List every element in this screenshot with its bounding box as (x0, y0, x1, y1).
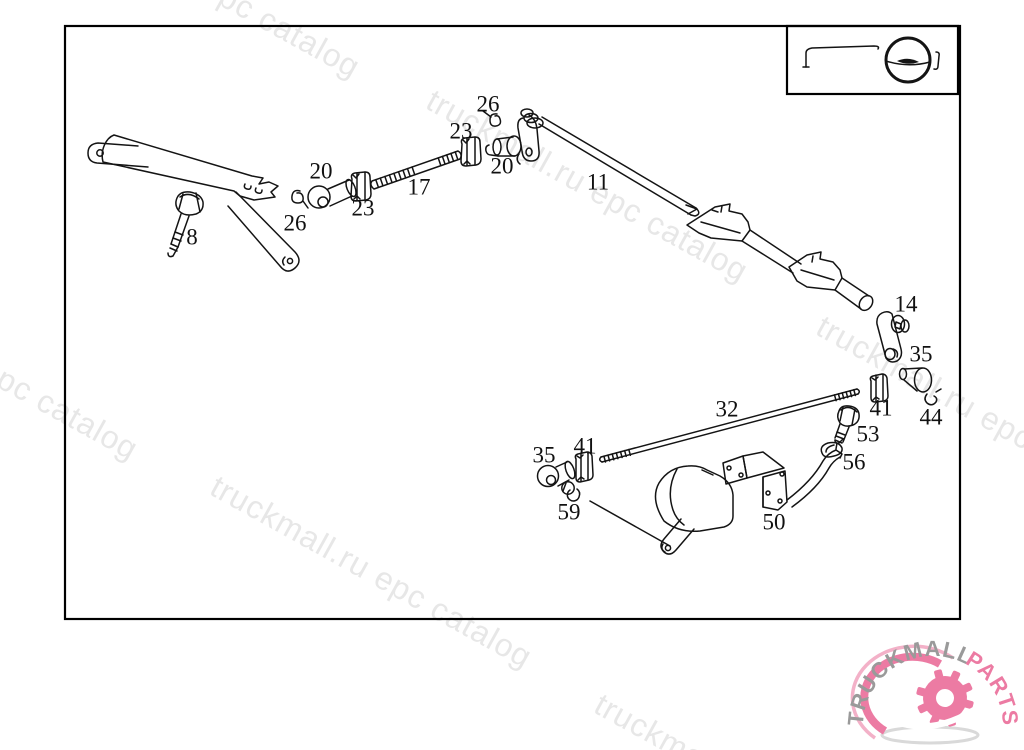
part-53-bolt (835, 406, 859, 443)
inset-box (787, 26, 958, 94)
callout-11[interactable]: 11 (587, 171, 609, 194)
callout-53[interactable]: 53 (857, 423, 880, 446)
callout-35-left[interactable]: 35 (533, 444, 556, 467)
callout-35-right[interactable]: 35 (910, 343, 933, 366)
callout-26-top[interactable]: 26 (477, 93, 500, 116)
callout-20-left[interactable]: 20 (310, 160, 333, 183)
truckmall-logo: TRUCKMALL PARTS (845, 636, 1024, 750)
part-14-link (877, 312, 909, 362)
callout-56[interactable]: 56 (843, 451, 866, 474)
lens-mark (897, 59, 919, 64)
part-lever-bracket (88, 135, 299, 271)
callout-23-upper[interactable]: 23 (450, 120, 473, 143)
inset-location-schematic (803, 38, 939, 82)
callout-44[interactable]: 44 (920, 406, 943, 429)
callout-41-right[interactable]: 41 (870, 397, 893, 420)
callout-23-left[interactable]: 23 (352, 197, 375, 220)
part-26-clip-left (292, 191, 308, 208)
callout-50[interactable]: 50 (763, 511, 786, 534)
callout-17[interactable]: 17 (408, 176, 431, 199)
part-11-rod-and-link (517, 109, 699, 216)
part-56-clip (821, 443, 842, 457)
callout-26-left[interactable]: 26 (284, 212, 307, 235)
callout-8[interactable]: 8 (186, 226, 198, 249)
callout-32[interactable]: 32 (716, 398, 739, 421)
part-shaft-assembly (687, 204, 876, 313)
part-44-clip (925, 389, 941, 405)
parts-diagram-page: truckmall.ru epc catalog truckmall.ru ep… (0, 0, 1024, 750)
callout-20-right[interactable]: 20 (491, 155, 514, 178)
part-50-bracket-group (655, 450, 842, 554)
callout-41-left[interactable]: 41 (574, 435, 597, 458)
callout-14[interactable]: 14 (895, 293, 918, 316)
part-35-bushing-right (900, 368, 932, 392)
callout-59[interactable]: 59 (558, 501, 581, 524)
diagram-border (65, 26, 960, 619)
logo-swoosh-base (882, 727, 978, 743)
